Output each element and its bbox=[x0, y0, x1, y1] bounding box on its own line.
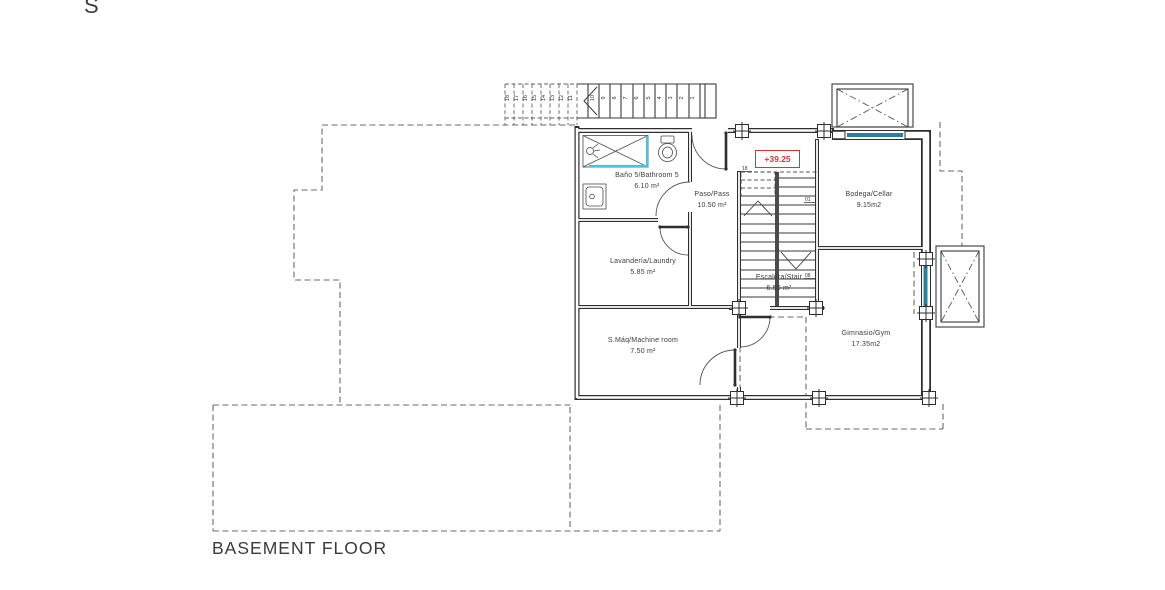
room-label-machine: S.Máq/Machine room 7.50 m² bbox=[608, 336, 678, 357]
room-area: 10.50 m² bbox=[694, 201, 729, 212]
stair-step-number: 7 bbox=[623, 96, 629, 99]
floor-title: BASEMENT FLOOR bbox=[212, 538, 387, 559]
stair-step-number: 3 bbox=[668, 96, 674, 99]
stair-step-number: 13 bbox=[550, 95, 556, 101]
shower-icon bbox=[583, 136, 648, 168]
room-label-stair: Escalera/Stair 6.50 m² bbox=[756, 273, 802, 294]
room-area: 6.50 m² bbox=[756, 284, 802, 295]
room-label-pass: Paso/Pass 10.50 m² bbox=[694, 190, 729, 211]
floor-plan-drawing: 18 17 16 15 14 13 12 11 10 9 8 7 6 5 4 3… bbox=[0, 0, 1165, 590]
room-area: 6.10 m² bbox=[615, 182, 679, 193]
entry-door bbox=[692, 131, 728, 170]
room-name: Escalera/Stair bbox=[756, 274, 802, 281]
column-marker bbox=[917, 304, 935, 322]
column-marker bbox=[728, 389, 746, 407]
laundry-door bbox=[658, 225, 689, 255]
column-marker bbox=[733, 122, 751, 140]
window-cellar bbox=[845, 130, 905, 141]
room-area: 5.85 m² bbox=[610, 268, 676, 279]
room-label-laundry: Lavandería/Laundry 5.85 m² bbox=[610, 257, 676, 278]
stair-step-number: 1 bbox=[690, 96, 696, 99]
stair-step-number: 5 bbox=[646, 96, 652, 99]
column-marker bbox=[917, 250, 935, 268]
room-area: 17.35m2 bbox=[842, 340, 891, 351]
stair-step-number: 6 bbox=[634, 96, 640, 99]
stair-step-label-top: 18 bbox=[742, 166, 748, 172]
column-marker bbox=[730, 299, 748, 317]
column-marker bbox=[920, 389, 938, 407]
footprint-dashed-outline bbox=[213, 122, 962, 531]
sink-icon bbox=[583, 184, 606, 209]
floor-plan-sheet: 18 17 16 15 14 13 12 11 10 9 8 7 6 5 4 3… bbox=[0, 0, 1165, 590]
column-marker bbox=[807, 299, 825, 317]
machine-room-door bbox=[700, 348, 737, 386]
compass-letter: S bbox=[84, 0, 99, 19]
stair-step-number: 2 bbox=[679, 96, 685, 99]
stair-down-arrow-icon bbox=[781, 252, 811, 269]
room-name: Bodega/Cellar bbox=[846, 191, 893, 198]
room-area: 9.15m2 bbox=[846, 201, 893, 212]
room-name: Gimnasio/Gym bbox=[842, 330, 891, 337]
stair-step-number: 8 bbox=[612, 96, 618, 99]
exterior-stair: 18 17 16 15 14 13 12 11 10 9 8 7 6 5 4 3… bbox=[505, 84, 716, 125]
lightwell-top bbox=[832, 84, 913, 127]
level-marker-badge: +39.25 bbox=[755, 150, 800, 168]
lightwell-right bbox=[936, 246, 984, 327]
stair-step-number: 11 bbox=[568, 95, 574, 101]
stair-step-number: 15 bbox=[532, 95, 538, 101]
column-marker bbox=[810, 389, 828, 407]
room-name: Paso/Pass bbox=[694, 191, 729, 198]
room-label-bathroom: Baño 5/Bathroom 5 6.10 m² bbox=[615, 171, 679, 192]
column-marker bbox=[815, 122, 833, 140]
stair-step-number: 9 bbox=[601, 96, 607, 99]
room-name: Baño 5/Bathroom 5 bbox=[615, 172, 679, 179]
stair-step-number: 16 bbox=[523, 95, 529, 101]
stair-gym-door bbox=[738, 315, 771, 347]
stair-step-number: 17 bbox=[514, 95, 520, 101]
stair-step-number: 4 bbox=[657, 96, 663, 99]
toilet-icon bbox=[659, 136, 677, 162]
room-area: 7.50 m² bbox=[608, 347, 678, 358]
stair-step-label-first: 01 bbox=[805, 197, 811, 203]
room-name: S.Máq/Machine room bbox=[608, 337, 678, 344]
stair-step-number: 14 bbox=[541, 95, 547, 101]
stair-step-number: 12 bbox=[559, 95, 565, 101]
stair-step-number: 18 bbox=[505, 95, 511, 101]
room-name: Lavandería/Laundry bbox=[610, 258, 676, 265]
stair-step-number: 10 bbox=[590, 95, 596, 101]
stair-step-label-last: 08 bbox=[805, 273, 811, 279]
room-label-cellar: Bodega/Cellar 9.15m2 bbox=[846, 190, 893, 211]
exterior-stair-numbers: 18 17 16 15 14 13 12 11 10 9 8 7 6 5 4 3… bbox=[505, 95, 696, 101]
room-label-gym: Gimnasio/Gym 17.35m2 bbox=[842, 329, 891, 350]
